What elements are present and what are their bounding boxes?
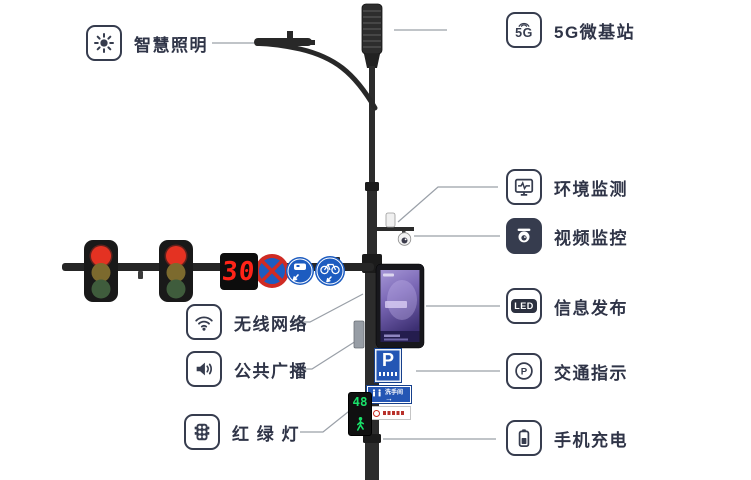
notice-text-marks xyxy=(383,411,405,415)
pedestrian-signal: 48 xyxy=(348,392,372,436)
feature-information-release: LED 信息发布 xyxy=(506,288,628,324)
speaker-icon xyxy=(186,351,222,387)
feature-video-surveillance: 视频监控 xyxy=(506,218,628,254)
feature-label: 信息发布 xyxy=(554,294,628,319)
feature-public-broadcast: 公共广播 xyxy=(186,351,308,387)
feature-label: 红 绿 灯 xyxy=(232,420,300,445)
restroom-arrow-icon: → xyxy=(385,395,393,403)
prohibition-icon xyxy=(373,410,380,417)
walking-person-icon xyxy=(355,416,366,432)
parking-sign: P xyxy=(374,348,402,383)
led-display-screen xyxy=(376,264,424,348)
restroom-people-icon xyxy=(371,389,383,397)
vehicle-countdown-display: 30 xyxy=(220,253,258,290)
feature-environment-monitoring: 环境监测 xyxy=(506,169,628,205)
lamp-head xyxy=(254,38,312,46)
led-icon: LED xyxy=(506,288,542,324)
traffic-light-icon xyxy=(184,414,220,450)
environment-sensor xyxy=(386,213,395,227)
vehicle-countdown-value: 30 xyxy=(221,257,257,287)
parking-sign-letter: P xyxy=(375,349,401,371)
traffic-light-head-1 xyxy=(84,240,118,302)
wifi-ap-unit xyxy=(354,321,364,348)
feature-label: 公共广播 xyxy=(234,357,308,382)
smart-pole-diagram: 30 P 洗手间 → 48 xyxy=(0,0,751,480)
feature-traffic-indication: P 交通指示 xyxy=(506,353,628,389)
feature-traffic-light: 红 绿 灯 xyxy=(184,414,300,450)
pedestrian-countdown-value: 48 xyxy=(352,396,367,409)
feature-label: 视频监控 xyxy=(554,224,628,249)
antenna-5g xyxy=(362,4,382,68)
traffic-light-head-2 xyxy=(159,240,193,302)
restroom-direction-sign: 洗手间 → xyxy=(367,386,411,403)
feature-label: 智慧照明 xyxy=(134,31,208,56)
feature-label: 无线网络 xyxy=(234,310,308,335)
led-icon-text: LED xyxy=(511,299,538,313)
feature-label: 5G微基站 xyxy=(554,18,635,43)
monitor-waveform-icon xyxy=(506,169,542,205)
street-lamp-arm xyxy=(254,31,375,108)
battery-icon xyxy=(506,420,542,456)
no-stopping-sign xyxy=(257,256,287,286)
feature-phone-charging: 手机充电 xyxy=(506,420,628,456)
notice-sign xyxy=(369,406,411,420)
parking-circle-letter: P xyxy=(521,366,528,377)
5g-icon: 5G xyxy=(506,12,542,48)
feature-label: 交通指示 xyxy=(554,359,628,384)
motor-vehicle-lane-sign xyxy=(286,257,314,285)
wifi-icon xyxy=(186,304,222,340)
feature-5g-base-station: 5G 5G微基站 xyxy=(506,12,635,48)
parking-circle-icon: P xyxy=(506,353,542,389)
bicycle-lane-sign xyxy=(315,256,345,286)
dome-camera-icon xyxy=(506,218,542,254)
light-icon xyxy=(86,25,122,61)
sensor-camera-mount xyxy=(375,213,414,245)
feature-label: 环境监测 xyxy=(554,175,628,200)
feature-label: 手机充电 xyxy=(554,426,628,451)
feature-wireless-network: 无线网络 xyxy=(186,304,308,340)
parking-sign-subtext xyxy=(379,372,397,376)
5g-icon-text: 5G xyxy=(515,27,533,40)
feature-smart-lighting: 智慧照明 xyxy=(86,25,208,61)
